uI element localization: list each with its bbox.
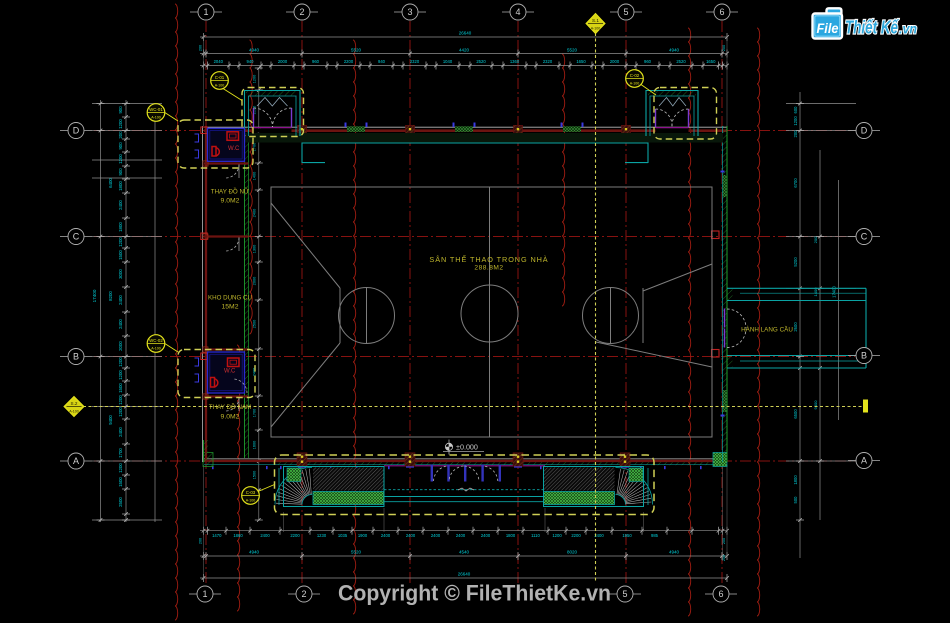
- svg-text:2000: 2000: [278, 59, 288, 64]
- svg-text:1200: 1200: [253, 75, 257, 83]
- svg-text:5: 5: [622, 589, 627, 599]
- svg-text:6: 6: [719, 7, 724, 17]
- svg-text:A-100: A-100: [630, 82, 640, 86]
- svg-text:288.8M2: 288.8M2: [474, 265, 503, 272]
- svg-text:940: 940: [247, 59, 255, 64]
- svg-text:1500: 1500: [118, 477, 123, 487]
- svg-text:S.2: S.2: [71, 401, 78, 406]
- svg-text:4: 4: [515, 7, 520, 17]
- svg-text:8200: 8200: [108, 291, 113, 301]
- svg-text:900: 900: [118, 142, 123, 150]
- svg-text:1500: 1500: [118, 383, 123, 393]
- svg-text:1110: 1110: [531, 533, 540, 538]
- svg-text:1860: 1860: [233, 533, 243, 538]
- svg-text:200: 200: [722, 45, 726, 51]
- svg-text:1200: 1200: [118, 463, 123, 473]
- svg-text:900: 900: [118, 106, 123, 114]
- svg-text:6700: 6700: [793, 178, 798, 188]
- svg-text:2400: 2400: [118, 427, 123, 437]
- svg-text:2320: 2320: [410, 59, 420, 64]
- svg-text:2400: 2400: [481, 533, 491, 538]
- svg-text:1800: 1800: [118, 181, 123, 191]
- svg-text:D: D: [73, 126, 80, 136]
- svg-text:A: A: [73, 456, 79, 466]
- svg-text:2400: 2400: [260, 533, 270, 538]
- svg-text:200: 200: [813, 236, 818, 243]
- svg-text:C-02: C-02: [630, 73, 640, 78]
- svg-text:1: 1: [202, 589, 207, 599]
- svg-text:1200: 1200: [118, 395, 123, 405]
- svg-text:1900: 1900: [358, 533, 368, 538]
- svg-text:2040: 2040: [214, 59, 224, 64]
- svg-text:1800: 1800: [793, 475, 798, 485]
- svg-text:1470: 1470: [212, 533, 222, 538]
- svg-text:200: 200: [118, 131, 123, 139]
- svg-text:1200: 1200: [118, 119, 123, 129]
- svg-text:960: 960: [644, 59, 652, 64]
- svg-text:2400: 2400: [118, 319, 123, 329]
- svg-text:4940: 4940: [669, 550, 680, 555]
- svg-text:1200: 1200: [552, 533, 562, 538]
- svg-text:1950: 1950: [622, 533, 632, 538]
- svg-text:W.C: W.C: [224, 369, 236, 375]
- svg-text:2500: 2500: [253, 320, 257, 328]
- svg-text:A: A: [861, 456, 867, 466]
- svg-text:15M2: 15M2: [221, 304, 238, 311]
- svg-text:4940: 4940: [249, 48, 260, 53]
- svg-text:WC-01: WC-01: [149, 107, 163, 112]
- svg-text:500: 500: [793, 496, 798, 504]
- svg-text:1: 1: [203, 7, 208, 17]
- svg-text:1200: 1200: [793, 116, 798, 126]
- svg-text:9400: 9400: [813, 400, 818, 410]
- svg-text:File: File: [817, 21, 839, 36]
- svg-text:5520: 5520: [351, 48, 362, 53]
- svg-text:1200: 1200: [118, 357, 123, 367]
- svg-text:3000: 3000: [118, 269, 123, 279]
- svg-text:KHO DỤNG CỤ: KHO DỤNG CỤ: [208, 295, 252, 302]
- svg-text:Copyright © FileThietKe.vn: Copyright © FileThietKe.vn: [338, 581, 611, 606]
- svg-text:1700: 1700: [253, 409, 257, 417]
- svg-text:5520: 5520: [351, 550, 362, 555]
- svg-text:A-100: A-100: [591, 27, 601, 31]
- svg-text:1200: 1200: [118, 370, 123, 380]
- svg-text:5: 5: [623, 7, 628, 17]
- svg-text:B: B: [73, 352, 79, 362]
- svg-text:SÂN THỂ THAO TRONG NHÀ: SÂN THỂ THAO TRONG NHÀ: [429, 255, 548, 264]
- svg-text:A-100: A-100: [151, 347, 161, 351]
- svg-text:2320: 2320: [543, 59, 553, 64]
- svg-text:WC-02: WC-02: [149, 338, 163, 343]
- svg-text:THAY ĐỒ NAM: THAY ĐỒ NAM: [209, 404, 251, 411]
- svg-text:5200: 5200: [793, 257, 798, 267]
- svg-text:985: 985: [651, 533, 659, 538]
- svg-text:4940: 4940: [249, 550, 260, 555]
- svg-text:1500: 1500: [118, 250, 123, 260]
- svg-text:S.1: S.1: [592, 18, 599, 23]
- svg-text:2200: 2200: [344, 59, 354, 64]
- svg-text:1800: 1800: [506, 533, 516, 538]
- svg-text:2: 2: [301, 589, 306, 599]
- svg-text:C-03: C-03: [246, 490, 256, 495]
- svg-text:2000: 2000: [610, 59, 620, 64]
- svg-text:3: 3: [407, 7, 412, 17]
- svg-text:1360: 1360: [510, 59, 520, 64]
- svg-text:C: C: [73, 232, 80, 242]
- svg-text:2400: 2400: [406, 533, 416, 538]
- svg-text:6400: 6400: [108, 178, 113, 188]
- svg-text:2400: 2400: [118, 295, 123, 305]
- svg-text:2520: 2520: [676, 59, 686, 64]
- svg-text:5520: 5520: [567, 48, 578, 53]
- svg-text:4940: 4940: [669, 48, 680, 53]
- svg-text:1200: 1200: [118, 237, 123, 247]
- svg-text:17400: 17400: [832, 286, 837, 298]
- svg-text:Thiết Kế: Thiết Kế: [845, 17, 899, 38]
- svg-text:C-01: C-01: [215, 75, 225, 80]
- svg-text:D: D: [861, 126, 868, 136]
- svg-text:1800: 1800: [118, 222, 123, 232]
- svg-text:C: C: [861, 232, 868, 242]
- svg-text:2200: 2200: [290, 533, 300, 538]
- svg-text:1700: 1700: [118, 448, 123, 458]
- svg-text:600: 600: [793, 106, 798, 114]
- svg-text:1300: 1300: [253, 245, 257, 253]
- svg-text:1400: 1400: [253, 172, 257, 180]
- svg-text:960: 960: [312, 59, 320, 64]
- svg-text:9.0M2: 9.0M2: [221, 414, 240, 421]
- svg-text:9400: 9400: [108, 415, 113, 425]
- svg-text:A-100: A-100: [246, 499, 256, 503]
- svg-text:2520: 2520: [476, 59, 486, 64]
- svg-text:6: 6: [718, 589, 723, 599]
- svg-text:1035: 1035: [338, 533, 348, 538]
- svg-text:200: 200: [199, 45, 203, 51]
- svg-text:.vn: .vn: [899, 22, 917, 37]
- svg-text:9.0M2: 9.0M2: [221, 198, 240, 205]
- svg-text:A-100: A-100: [215, 84, 225, 88]
- svg-text:2400: 2400: [253, 209, 257, 217]
- svg-text:200: 200: [199, 538, 203, 544]
- svg-text:2200: 2200: [571, 533, 581, 538]
- svg-text:6500: 6500: [793, 409, 798, 419]
- svg-text:1600: 1600: [253, 441, 257, 449]
- svg-text:1230: 1230: [317, 533, 327, 538]
- svg-text:2500: 2500: [118, 497, 123, 507]
- svg-text:1200: 1200: [118, 154, 123, 164]
- svg-text:2400: 2400: [431, 533, 441, 538]
- svg-text:1500: 1500: [253, 471, 257, 479]
- svg-text:1040: 1040: [443, 59, 453, 64]
- svg-text:200: 200: [793, 130, 798, 138]
- svg-text:1200: 1200: [118, 407, 123, 417]
- svg-text:2600: 2600: [793, 322, 798, 332]
- svg-text:2400: 2400: [456, 533, 466, 538]
- svg-text:W.C: W.C: [228, 146, 240, 152]
- svg-text:8020: 8020: [567, 550, 578, 555]
- svg-text:±0.000: ±0.000: [456, 442, 478, 451]
- svg-text:900: 900: [118, 168, 123, 176]
- svg-text:2400: 2400: [118, 200, 123, 210]
- svg-text:4420: 4420: [459, 48, 470, 53]
- svg-text:2400: 2400: [381, 533, 391, 538]
- svg-text:26640: 26640: [459, 31, 472, 36]
- svg-text:1650: 1650: [706, 59, 716, 64]
- svg-text:A-100: A-100: [151, 116, 161, 120]
- svg-text:2: 2: [299, 7, 304, 17]
- svg-text:A-100: A-100: [69, 410, 79, 414]
- svg-text:940: 940: [378, 59, 386, 64]
- svg-text:4540: 4540: [459, 550, 470, 555]
- svg-text:2000: 2000: [253, 277, 257, 285]
- svg-text:B: B: [861, 351, 867, 361]
- svg-text:THAY ĐỒ NỮ: THAY ĐỒ NỮ: [211, 189, 250, 196]
- svg-text:17400: 17400: [92, 289, 97, 302]
- svg-text:26640: 26640: [458, 572, 471, 577]
- svg-text:2000: 2000: [118, 341, 123, 351]
- svg-text:1650: 1650: [576, 59, 586, 64]
